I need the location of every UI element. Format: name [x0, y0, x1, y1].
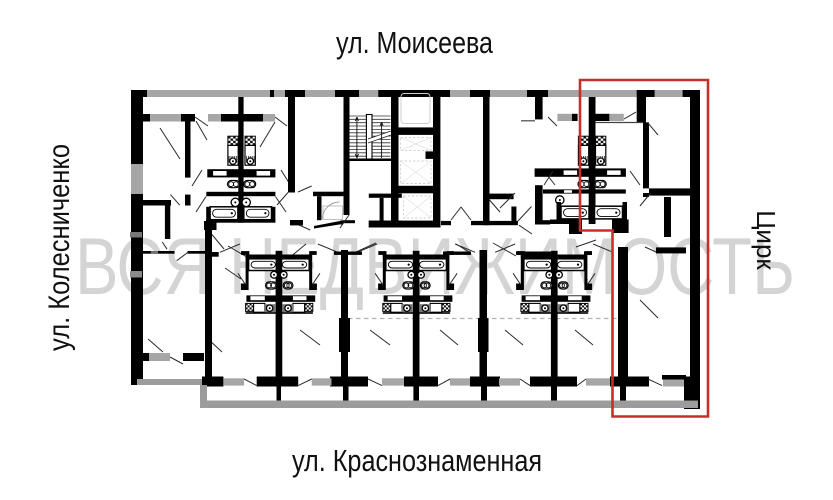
svg-text:ул. Краснознаменная: ул. Краснознаменная [292, 443, 542, 478]
svg-text:ул. Колесниченко: ул. Колесниченко [43, 144, 76, 351]
svg-text:Цирк: Цирк [751, 210, 781, 270]
svg-text:ул. Моисеева: ул. Моисеева [336, 25, 494, 60]
